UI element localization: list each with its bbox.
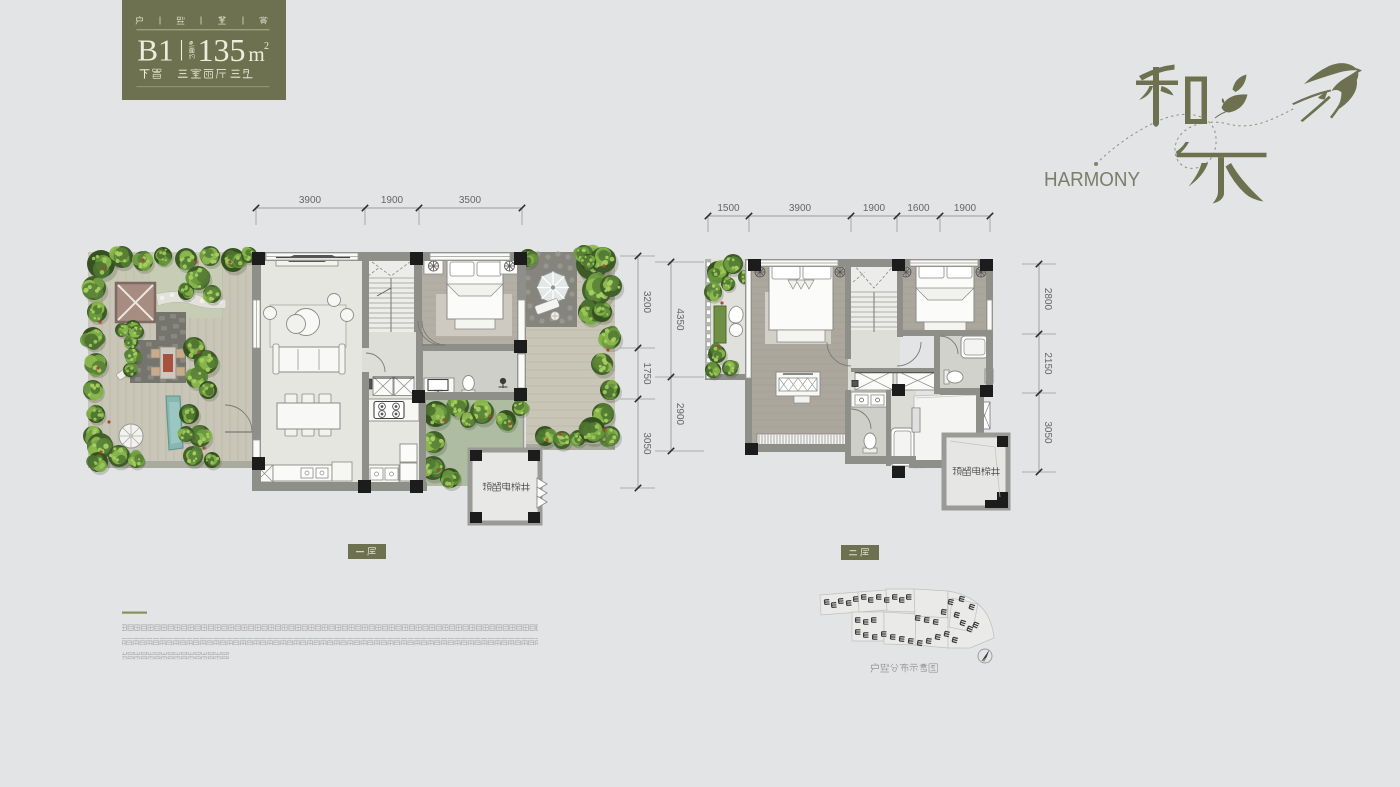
- svg-text:1900: 1900: [381, 195, 404, 206]
- svg-text:2800: 2800: [1042, 288, 1053, 311]
- svg-text:3050: 3050: [1042, 421, 1053, 444]
- svg-text:3900: 3900: [789, 203, 812, 214]
- svg-text:2150: 2150: [1042, 352, 1053, 375]
- svg-text:1600: 1600: [907, 203, 930, 214]
- svg-text:B1: B1: [137, 33, 173, 68]
- svg-text:2: 2: [264, 41, 269, 52]
- svg-text:HARMONY: HARMONY: [1044, 169, 1140, 191]
- svg-text:1900: 1900: [954, 203, 977, 214]
- svg-text:1900: 1900: [863, 203, 886, 214]
- svg-text:3500: 3500: [459, 195, 482, 206]
- svg-text:1500: 1500: [717, 203, 740, 214]
- svg-text:1750: 1750: [641, 362, 652, 385]
- svg-text:2900: 2900: [674, 403, 685, 426]
- svg-text:3200: 3200: [641, 291, 652, 314]
- svg-text:m: m: [248, 42, 264, 66]
- svg-text:3900: 3900: [299, 195, 322, 206]
- svg-text:3050: 3050: [641, 432, 652, 455]
- svg-text:4350: 4350: [674, 308, 685, 331]
- svg-text:135: 135: [198, 32, 246, 68]
